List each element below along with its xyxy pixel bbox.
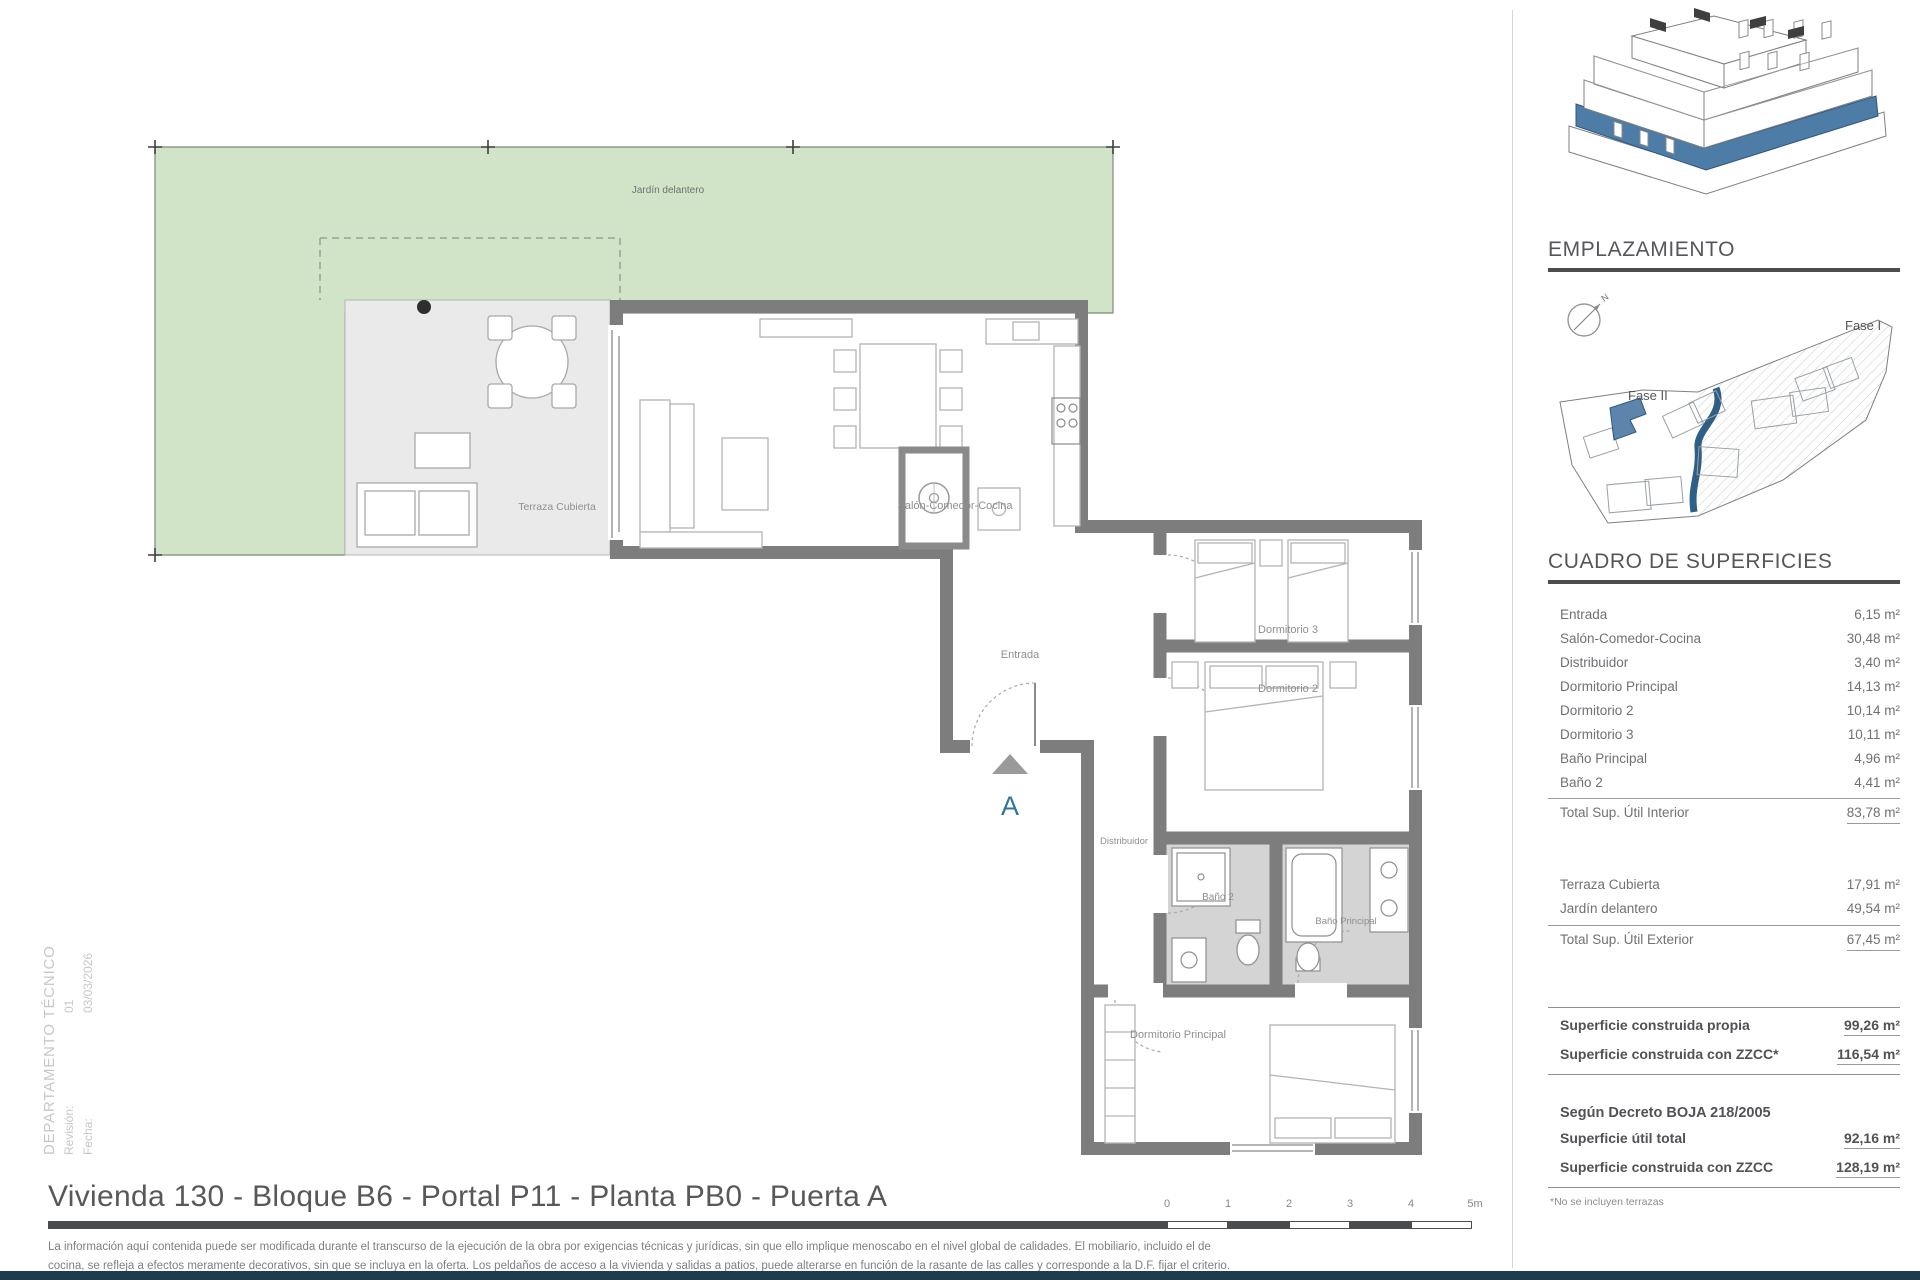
row-value: 92,16 m² <box>1844 1130 1900 1149</box>
column-icon <box>417 300 431 314</box>
row-label: Superficie construida propia <box>1548 1017 1750 1033</box>
scale-segment <box>1289 1221 1350 1229</box>
interior-total-row: Total Sup. Útil Interior83,78 m² <box>1548 798 1900 829</box>
scale-segment <box>1350 1221 1411 1229</box>
row-value: 128,19 m² <box>1836 1159 1900 1178</box>
exterior-table: Terraza Cubierta17,91 m² Jardín delanter… <box>1548 873 1900 956</box>
main-bedroom-label: Dormitorio Principal <box>1130 1029 1226 1041</box>
revision-label: Revisión: <box>60 1013 79 1155</box>
sidebar: EMPLAZAMIENTO N Fase I <box>1548 0 1900 1208</box>
highlighted-building <box>1610 398 1646 440</box>
hall-label: Entrada <box>1001 649 1040 661</box>
distributor-label: Distribuidor <box>1100 836 1148 847</box>
row-label: Superficie útil total <box>1548 1130 1686 1146</box>
department-title: DEPARTAMENTO TÉCNICO <box>40 855 60 1155</box>
north-compass-icon: N <box>1568 292 1610 336</box>
table-row: Dormitorio 210,14 m² <box>1548 698 1900 722</box>
row-value: 3,40 m² <box>1854 655 1900 670</box>
row-value: 4,96 m² <box>1854 751 1900 766</box>
table-row: Dormitorio Principal14,13 m² <box>1548 674 1900 698</box>
row-value: 49,54 m² <box>1847 901 1900 916</box>
row-label: Dormitorio Principal <box>1548 679 1678 694</box>
row-label: Total Sup. Útil Exterior <box>1548 932 1694 947</box>
footnote: *No se incluyen terrazas <box>1548 1188 1900 1208</box>
scale-tick-label: 1 <box>1225 1198 1231 1210</box>
fase1-area <box>1698 320 1892 516</box>
bedroom3-label: Dormitorio 3 <box>1258 624 1318 636</box>
exterior-total-row: Total Sup. Útil Exterior67,45 m² <box>1548 925 1900 956</box>
row-value: 6,15 m² <box>1854 607 1900 622</box>
table-row: Entrada6,15 m² <box>1548 602 1900 626</box>
table-row: Superficie construida con ZZCC128,19 m² <box>1548 1154 1900 1183</box>
page-title: Vivienda 130 - Bloque B6 - Portal P11 - … <box>48 1180 887 1214</box>
row-label: Dormitorio 3 <box>1548 727 1634 742</box>
bath2-label: Baño 2 <box>1202 892 1234 903</box>
row-label: Salón-Comedor-Cocina <box>1548 631 1701 646</box>
row-label: Dormitorio 2 <box>1548 703 1634 718</box>
row-value: 10,11 m² <box>1848 727 1900 742</box>
table-row: Salón-Comedor-Cocina30,48 m² <box>1548 626 1900 650</box>
section-triangle-icon <box>992 754 1028 774</box>
site-plan: N Fase I Fase II <box>1548 280 1900 528</box>
row-label: Superficie construida con ZZCC <box>1548 1159 1773 1175</box>
row-label: Jardín delantero <box>1548 901 1658 916</box>
title-underline <box>48 1221 1167 1229</box>
bedroom2-label: Dormitorio 2 <box>1258 683 1318 695</box>
scale-tick-label: 3 <box>1347 1198 1353 1210</box>
north-label: N <box>1599 292 1610 304</box>
scale-segment <box>1228 1221 1289 1229</box>
construida-table: Superficie construida propia99,26 m² Sup… <box>1548 1007 1900 1075</box>
row-label: Entrada <box>1548 607 1607 622</box>
row-value: 4,41 m² <box>1854 775 1900 790</box>
row-value: 10,14 m² <box>1847 703 1900 718</box>
row-value: 67,45 m² <box>1847 932 1900 951</box>
interior-table: Entrada6,15 m² Salón-Comedor-Cocina30,48… <box>1548 602 1900 829</box>
superficies-heading: CUADRO DE SUPERFICIES <box>1548 550 1900 584</box>
scale-tick-label: 2 <box>1286 1198 1292 1210</box>
scale-tick-label: 0 <box>1164 1198 1170 1210</box>
row-value: 14,13 m² <box>1847 679 1900 694</box>
footer-bar <box>0 1271 1920 1280</box>
date-label: Fecha: <box>79 1013 98 1155</box>
date-value: 03/03/2026 <box>81 953 95 1013</box>
row-label: Superficie construida con ZZCC* <box>1548 1046 1779 1062</box>
living-label: Salón-Comedor-Cocina <box>898 500 1014 512</box>
building-3d-illustration <box>1554 6 1894 202</box>
scale-tick-label: 4 <box>1408 1198 1414 1210</box>
table-row: Distribuidor3,40 m² <box>1548 650 1900 674</box>
technical-department-block: DEPARTAMENTO TÉCNICO Revisión:01 Fecha:0… <box>40 855 98 1155</box>
scale-tick-label: 5m <box>1467 1198 1482 1210</box>
row-label: Total Sup. Útil Interior <box>1548 805 1689 820</box>
table-row: Jardín delantero49,54 m² <box>1548 897 1900 921</box>
table-row: Superficie construida propia99,26 m² <box>1548 1012 1900 1041</box>
fase1-label: Fase I <box>1845 318 1881 333</box>
table-row: Terraza Cubierta17,91 m² <box>1548 873 1900 897</box>
fase2-label: Fase II <box>1628 388 1668 403</box>
row-value: 30,48 m² <box>1847 631 1900 646</box>
sidebar-divider <box>1512 10 1513 1268</box>
row-label: Baño Principal <box>1548 751 1647 766</box>
table-row: Superficie útil total92,16 m² <box>1548 1125 1900 1154</box>
row-label: Baño 2 <box>1548 775 1603 790</box>
bathmain-label: Baño Principal <box>1315 916 1376 927</box>
date-line: Fecha:03/03/2026 <box>79 855 98 1155</box>
row-value: 116,54 m² <box>1837 1046 1900 1065</box>
revision-value: 01 <box>62 1000 76 1013</box>
row-value: 83,78 m² <box>1847 805 1900 824</box>
row-label: Distribuidor <box>1548 655 1628 670</box>
table-row: Baño 24,41 m² <box>1548 770 1900 794</box>
disclaimer-line: La información aquí contenida puede ser … <box>48 1238 1500 1257</box>
terrace-label: Terraza Cubierta <box>518 501 596 513</box>
revision-line: Revisión:01 <box>60 855 79 1155</box>
floor-plan: Jardín delantero Terraza Cubierta <box>120 100 1490 1180</box>
decreto-heading: Según Decreto BOJA 218/2005 <box>1548 1101 1900 1125</box>
row-value: 17,91 m² <box>1847 877 1900 892</box>
row-value: 99,26 m² <box>1844 1017 1900 1036</box>
emplazamiento-heading: EMPLAZAMIENTO <box>1548 238 1900 272</box>
row-label: Terraza Cubierta <box>1548 877 1660 892</box>
table-row: Dormitorio 310,11 m² <box>1548 722 1900 746</box>
decreto-table: Según Decreto BOJA 218/2005 Superficie ú… <box>1548 1101 1900 1208</box>
scale-segment <box>1167 1221 1228 1229</box>
section-marker-label: A <box>1001 791 1019 821</box>
utility-closet <box>902 450 966 546</box>
scale-segment <box>1411 1221 1472 1229</box>
garden-label: Jardín delantero <box>632 185 705 196</box>
table-row: Baño Principal4,96 m² <box>1548 746 1900 770</box>
table-row: Superficie construida con ZZCC*116,54 m² <box>1548 1041 1900 1070</box>
